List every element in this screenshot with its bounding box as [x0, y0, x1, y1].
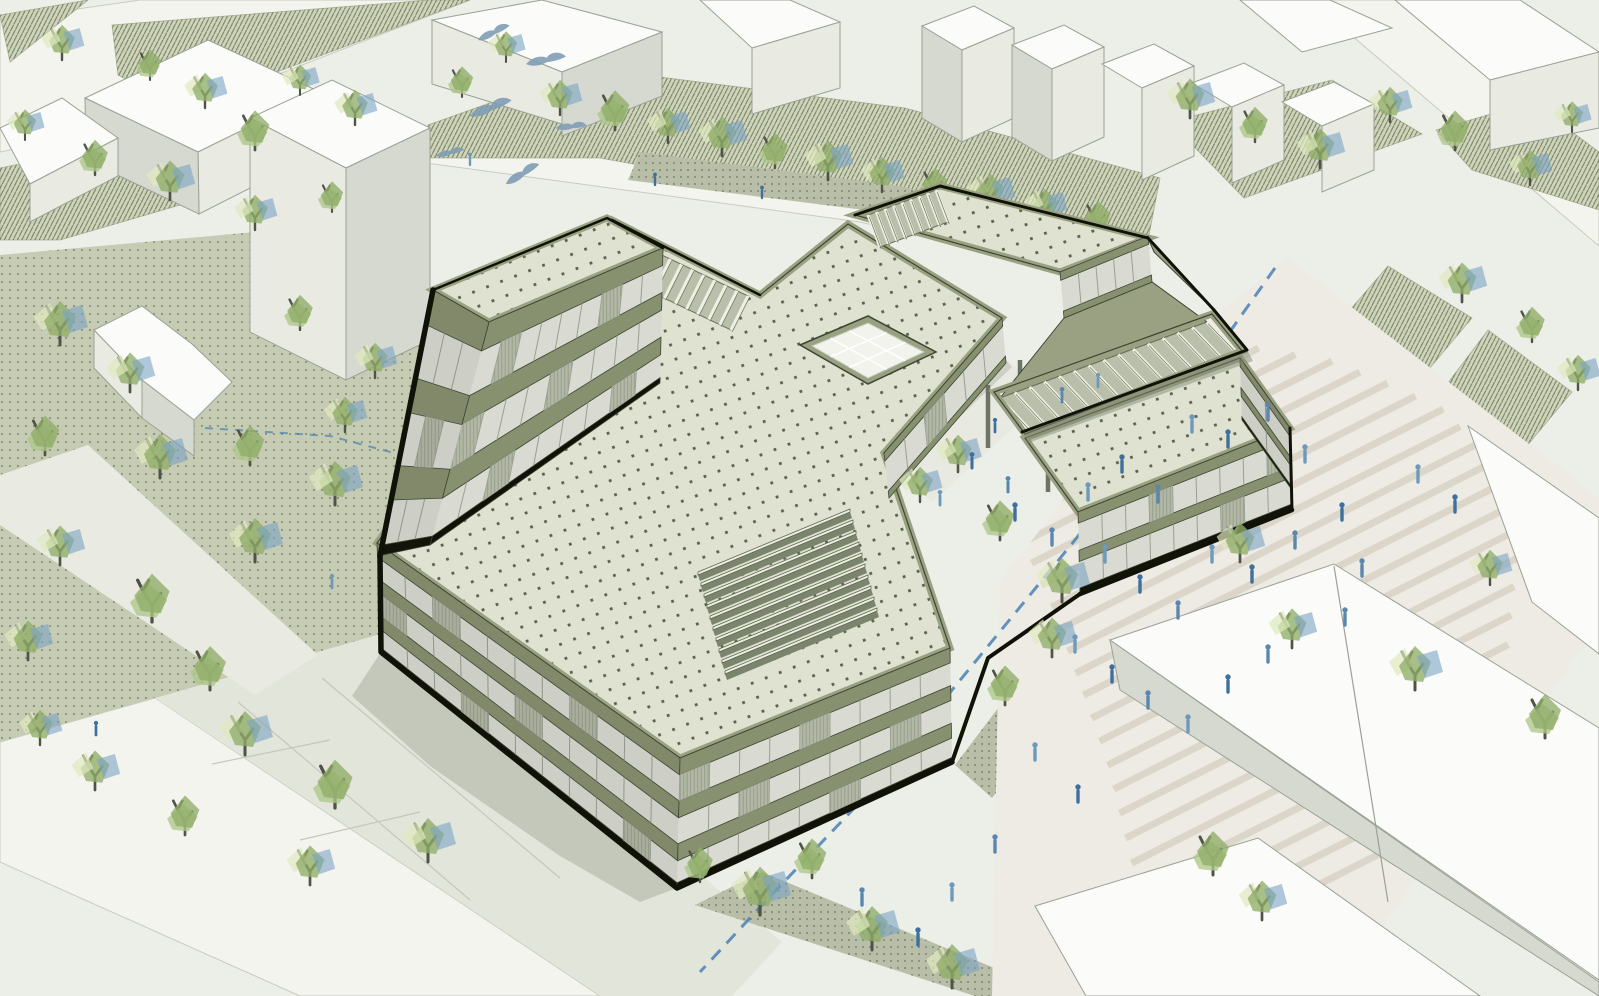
- building-outline: [1290, 428, 1292, 510]
- architectural-visualization: [0, 0, 1599, 996]
- context-building: [346, 128, 430, 380]
- scene-svg: [0, 0, 1599, 996]
